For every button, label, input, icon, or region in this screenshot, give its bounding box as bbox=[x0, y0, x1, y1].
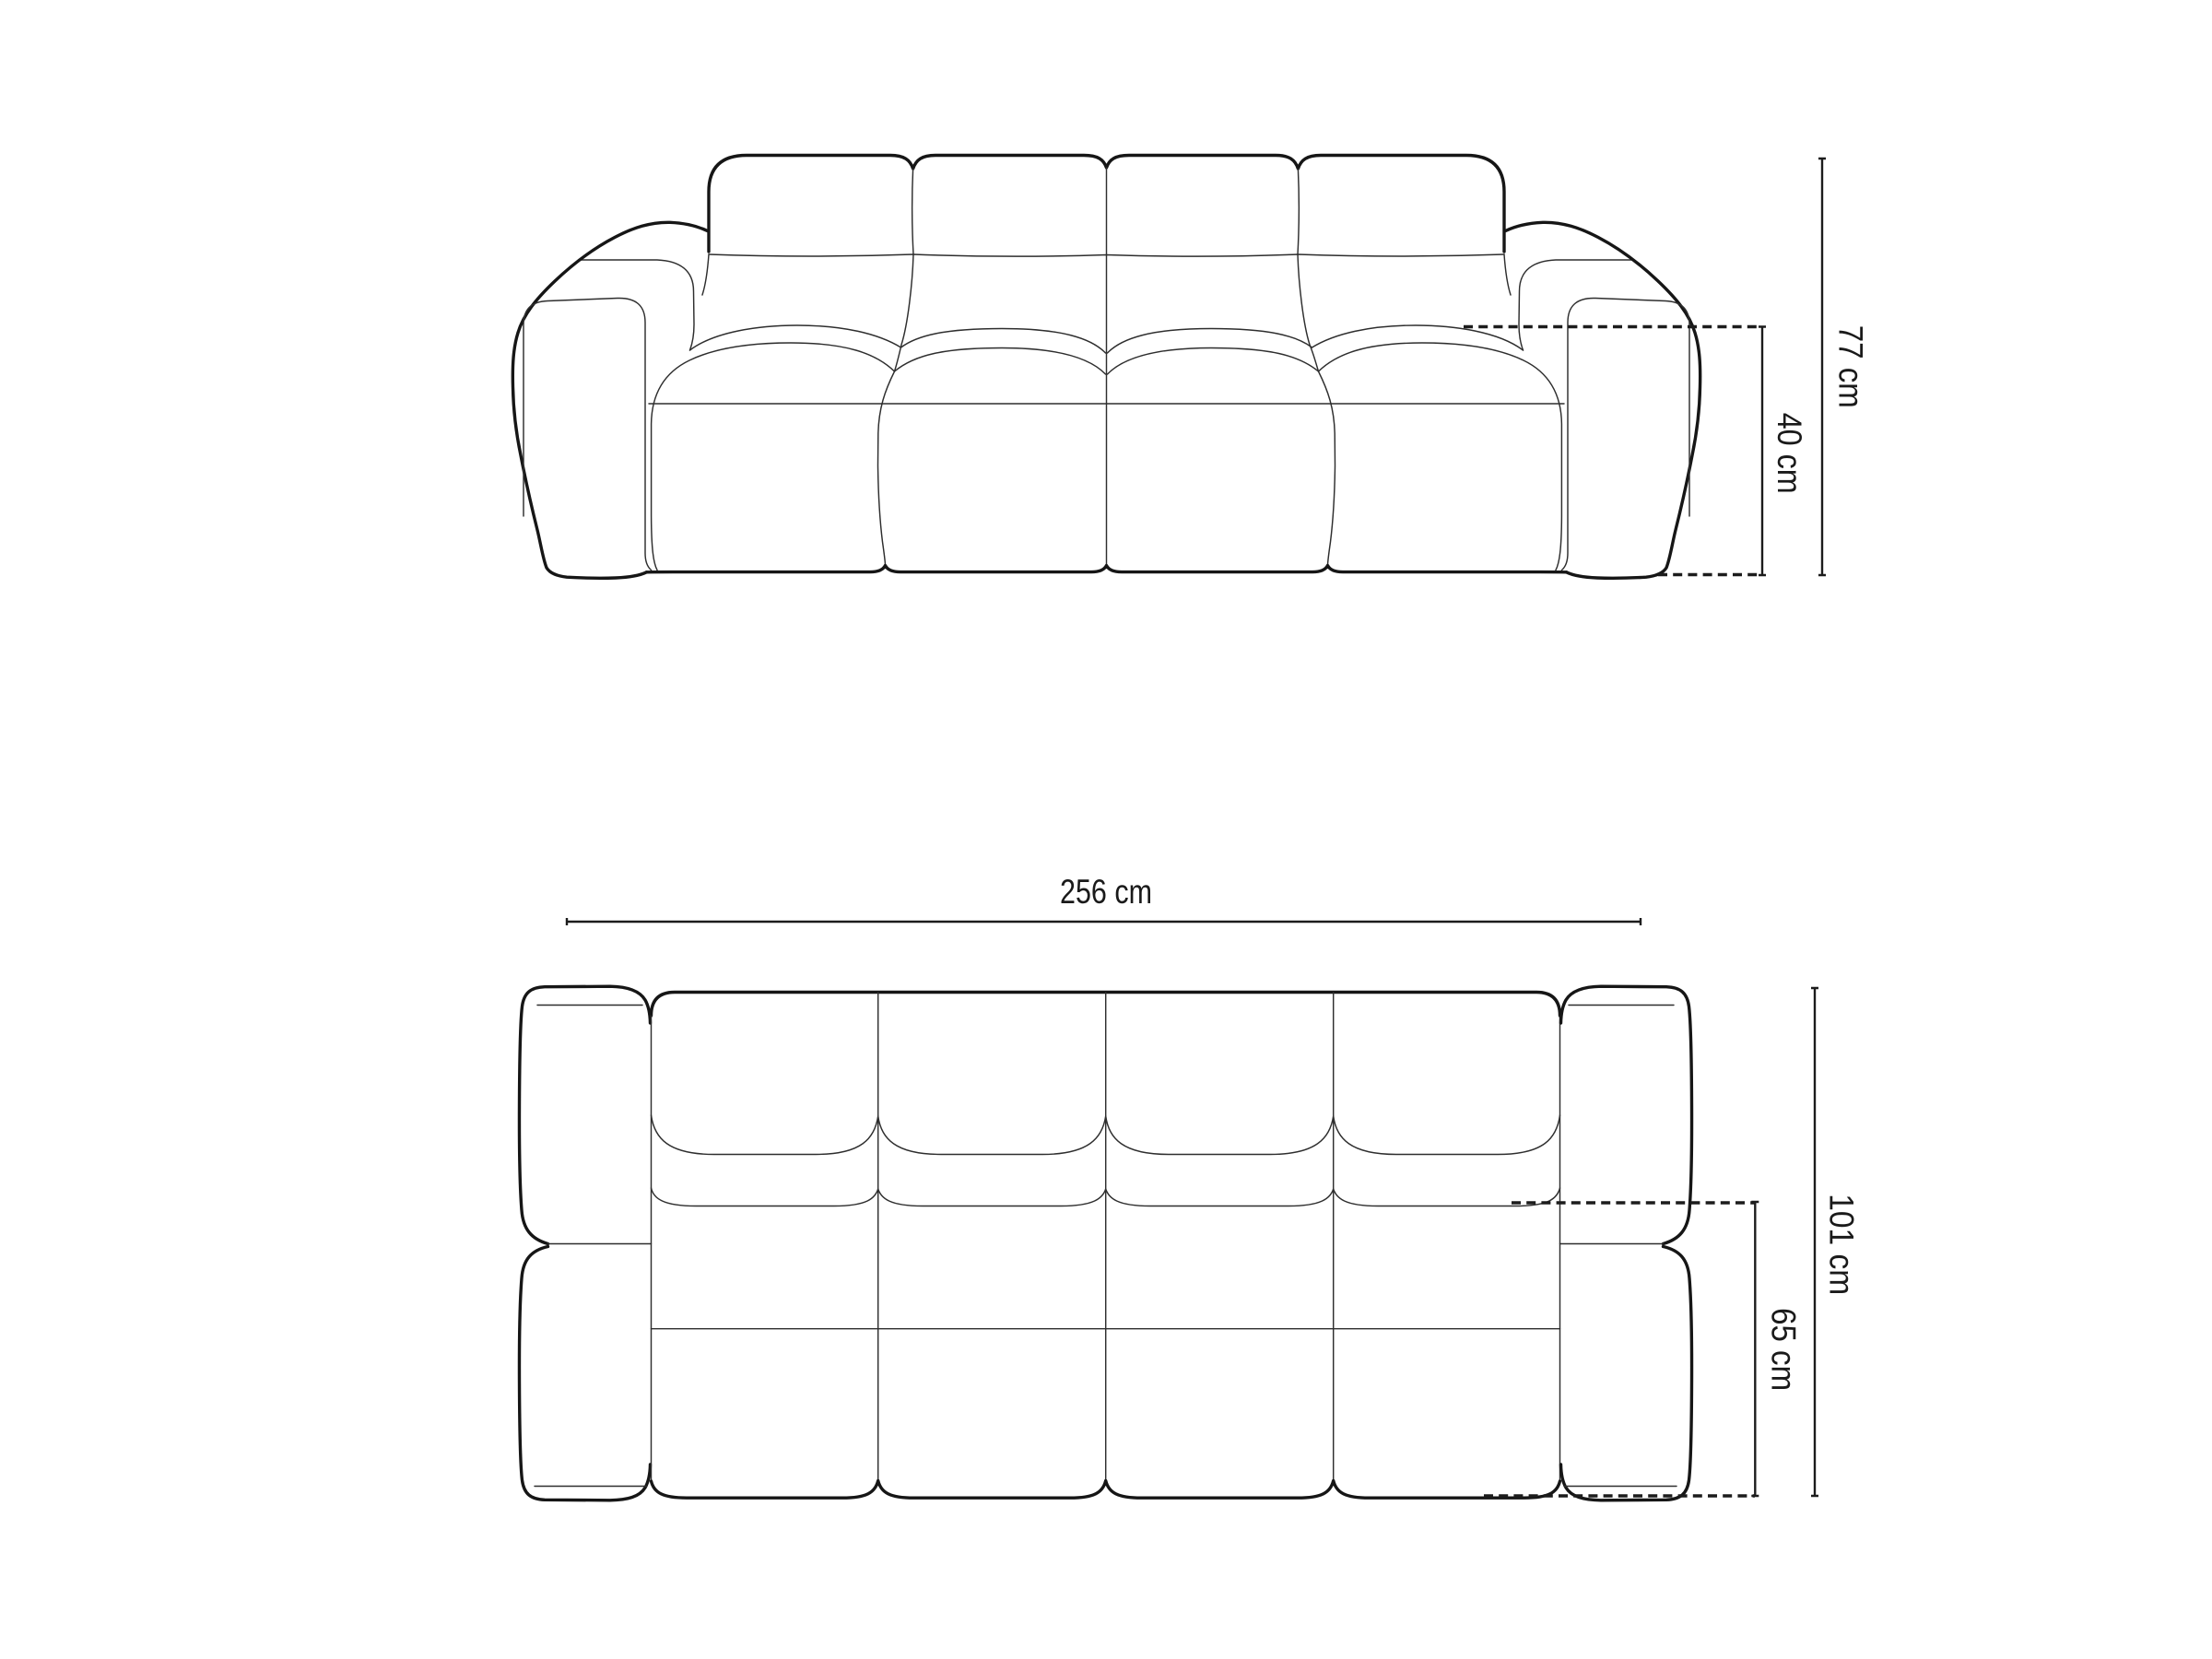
svg-text:101 cm: 101 cm bbox=[1823, 1194, 1861, 1295]
svg-text:65 cm: 65 cm bbox=[1765, 1308, 1803, 1391]
svg-text:77 cm: 77 cm bbox=[1832, 325, 1870, 408]
svg-text:40 cm: 40 cm bbox=[1771, 413, 1808, 494]
svg-text:256 cm: 256 cm bbox=[1060, 873, 1152, 911]
